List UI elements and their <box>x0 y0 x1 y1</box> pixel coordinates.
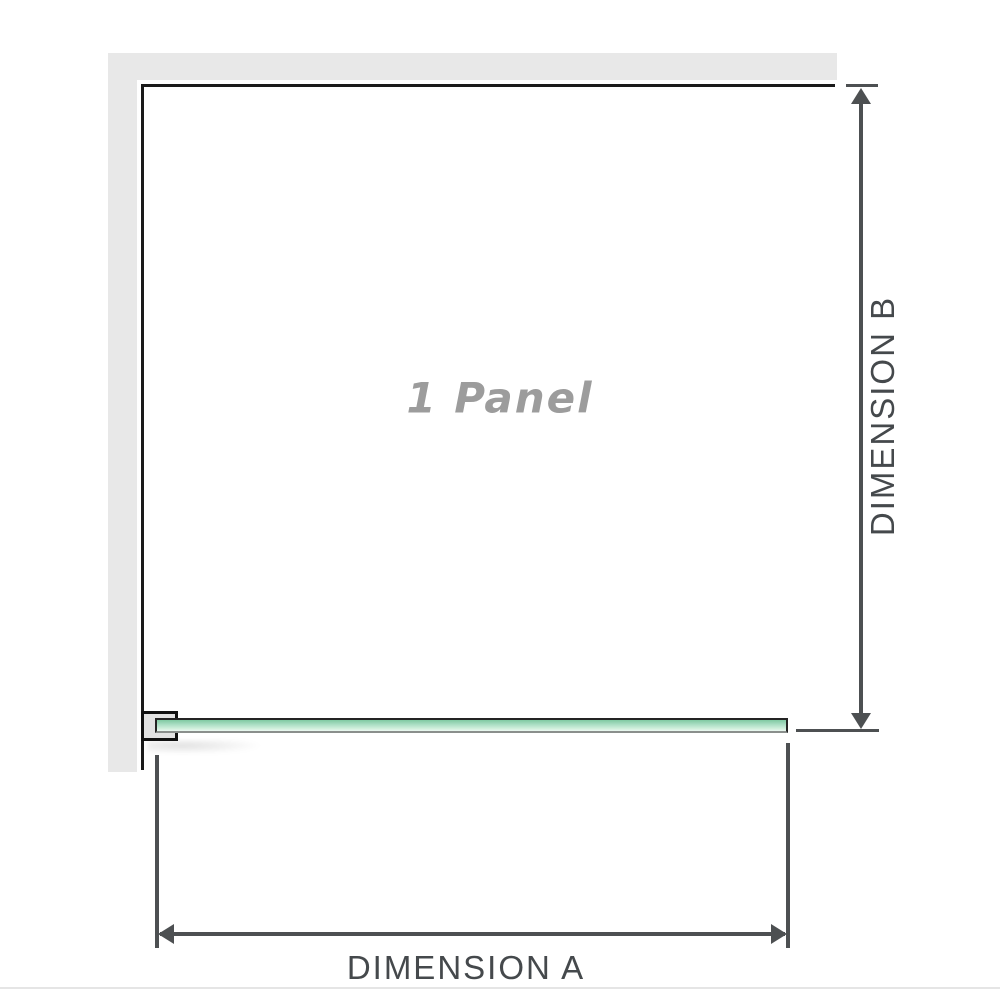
diagram-canvas: 1 Panel DIMENSION B DIMENSION A <box>0 0 1000 1000</box>
panel-area-border-top <box>141 84 835 87</box>
dimension-b-tick-top <box>846 84 878 87</box>
dimension-a-label: DIMENSION A <box>347 949 585 987</box>
arrow-left-icon <box>158 924 174 944</box>
wall-left <box>108 53 137 772</box>
dimension-a-extension-left <box>155 755 159 948</box>
dimension-a-line <box>160 932 785 936</box>
page-divider <box>0 987 1000 989</box>
wall-top <box>108 53 837 80</box>
arrow-right-icon <box>771 924 787 944</box>
panel-area-border-left <box>141 84 144 770</box>
dimension-a-extension-right <box>786 743 790 948</box>
glass-panel <box>155 718 788 733</box>
dimension-b-label: DIMENSION B <box>864 296 902 536</box>
panel-count-label: 1 Panel <box>406 374 593 423</box>
arrow-down-icon <box>851 713 871 729</box>
glass-panel-shadow <box>148 740 263 754</box>
dimension-b-line <box>859 100 863 716</box>
arrow-up-icon <box>851 88 871 104</box>
dimension-b-tick-bottom <box>796 729 879 732</box>
